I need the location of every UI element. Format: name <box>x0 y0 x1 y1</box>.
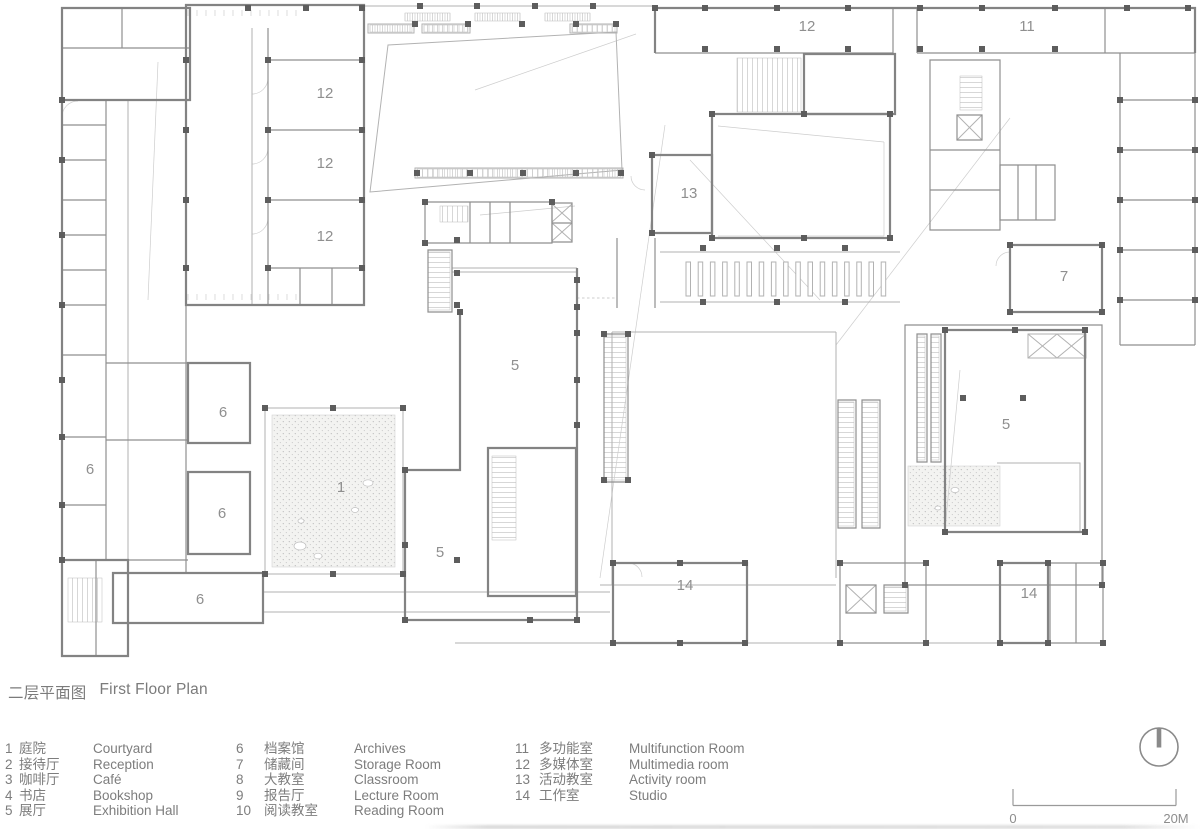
legend-item-number: 2 <box>5 757 19 773</box>
window-mullion-ticks <box>188 10 621 300</box>
legend-item-number: 13 <box>515 772 539 788</box>
legend-item-number: 1 <box>5 741 19 757</box>
legend-item: 7储藏间Storage Room <box>236 757 444 773</box>
room-number-label: 7 <box>1060 268 1068 285</box>
legend-item: 13活动教室Activity room <box>515 772 745 788</box>
legend-item-number: 3 <box>5 772 19 788</box>
legend-item: 14工作室Studio <box>515 788 745 804</box>
north-arrow-icon <box>1137 725 1181 769</box>
legend-item: 8大教室Classroom <box>236 772 444 788</box>
legend-item-en: Lecture Room <box>354 788 444 804</box>
legend-item-number: 10 <box>236 803 264 819</box>
legend-item-number: 11 <box>515 741 539 757</box>
legend-column-1: 1庭院Courtyard2接待厅Reception3咖啡厅Café4书店Book… <box>5 741 179 819</box>
legend-item-cn: 报告厅 <box>264 788 354 804</box>
room-number-label: 13 <box>681 185 698 202</box>
scale-zero-label: 0 <box>1009 811 1016 826</box>
room-number-label: 11 <box>1019 18 1035 35</box>
room-number-label: 6 <box>218 505 226 522</box>
courtyard-texture <box>272 415 1000 567</box>
scale-bar: 0 20M <box>1005 786 1200 828</box>
legend-item-cn: 阅读教室 <box>264 803 354 819</box>
legend-item-number: 8 <box>236 772 264 788</box>
legend-item-number: 12 <box>515 757 539 773</box>
room-number-label: 14 <box>1021 585 1038 602</box>
main-walls <box>62 5 1195 656</box>
plan-title-en: First Floor Plan <box>100 681 208 703</box>
legend-item-en: Exhibition Hall <box>93 803 179 819</box>
legend-item-cn: 庭院 <box>19 741 93 757</box>
legend-item-en: Multimedia room <box>629 757 745 773</box>
room-number-label: 5 <box>1002 416 1010 433</box>
room-number-label: 6 <box>86 461 94 478</box>
legend-item-en: Reading Room <box>354 803 444 819</box>
room-number-label: 6 <box>196 591 204 608</box>
legend-item-number: 9 <box>236 788 264 804</box>
plan-title-cn: 二层平面图 <box>8 681 87 703</box>
room-number-label: 12 <box>799 18 816 35</box>
legend-item: 1庭院Courtyard <box>5 741 179 757</box>
legend-item-en: Activity room <box>629 772 745 788</box>
room-number-label: 1 <box>337 479 345 496</box>
legend-item: 9报告厅Lecture Room <box>236 788 444 804</box>
legend-item-cn: 展厅 <box>19 803 93 819</box>
legend-item-en: Reception <box>93 757 179 773</box>
legend-item: 12多媒体室Multimedia room <box>515 757 745 773</box>
legend-item-number: 6 <box>236 741 264 757</box>
floor-plan-drawing: 1212121211137666615551414 <box>0 0 1200 662</box>
legend-item-cn: 工作室 <box>539 788 629 804</box>
legend-item-cn: 多媒体室 <box>539 757 629 773</box>
legend-item-cn: 大教室 <box>264 772 354 788</box>
legend-item-en: Archives <box>354 741 444 757</box>
legend-item: 6档案馆Archives <box>236 741 444 757</box>
legend-item-number: 4 <box>5 788 19 804</box>
plan-title: 二层平面图 First Floor Plan <box>8 681 208 703</box>
legend-item: 4书店Bookshop <box>5 788 179 804</box>
stair-hatches <box>68 13 982 622</box>
room-number-label: 6 <box>219 404 227 421</box>
legend-column-3: 11多功能室Multifunction Room12多媒体室Multimedia… <box>515 741 745 803</box>
room-number-label: 12 <box>317 85 334 102</box>
legend-item-en: Classroom <box>354 772 444 788</box>
legend-item-cn: 档案馆 <box>264 741 354 757</box>
legend-item-cn: 多功能室 <box>539 741 629 757</box>
legend-item-cn: 活动教室 <box>539 772 629 788</box>
legend-item-en: Café <box>93 772 179 788</box>
legend-item-number: 5 <box>5 803 19 819</box>
legend-column-2: 6档案馆Archives7储藏间Storage Room8大教室Classroo… <box>236 741 444 819</box>
legend-item-en: Storage Room <box>354 757 444 773</box>
legend-item-en: Multifunction Room <box>629 741 745 757</box>
legend-item: 5展厅Exhibition Hall <box>5 803 179 819</box>
room-number-label: 5 <box>436 544 444 561</box>
legend-item-number: 7 <box>236 757 264 773</box>
room-number-label: 12 <box>317 155 334 172</box>
legend-item-en: Studio <box>629 788 745 804</box>
legend-item: 10阅读教室Reading Room <box>236 803 444 819</box>
legend-item-cn: 书店 <box>19 788 93 804</box>
legend-item-en: Bookshop <box>93 788 179 804</box>
legend-item: 2接待厅Reception <box>5 757 179 773</box>
bookshelf-rows <box>686 262 886 296</box>
room-number-label: 12 <box>317 228 334 245</box>
legend-item-number: 14 <box>515 788 539 804</box>
legend-item-en: Courtyard <box>93 741 179 757</box>
legend-item: 3咖啡厅Café <box>5 772 179 788</box>
legend-item-cn: 接待厅 <box>19 757 93 773</box>
legend-item-cn: 咖啡厅 <box>19 772 93 788</box>
drawing-sheet: 1212121211137666615551414 二层平面图 First Fl… <box>0 0 1200 829</box>
sheet-edge-shadow <box>425 825 1200 829</box>
legend-item-cn: 储藏间 <box>264 757 354 773</box>
room-number-label: 14 <box>677 577 694 594</box>
room-number-label: 5 <box>511 357 519 374</box>
legend-item: 11多功能室Multifunction Room <box>515 741 745 757</box>
scale-max-label: 20M <box>1163 811 1188 826</box>
